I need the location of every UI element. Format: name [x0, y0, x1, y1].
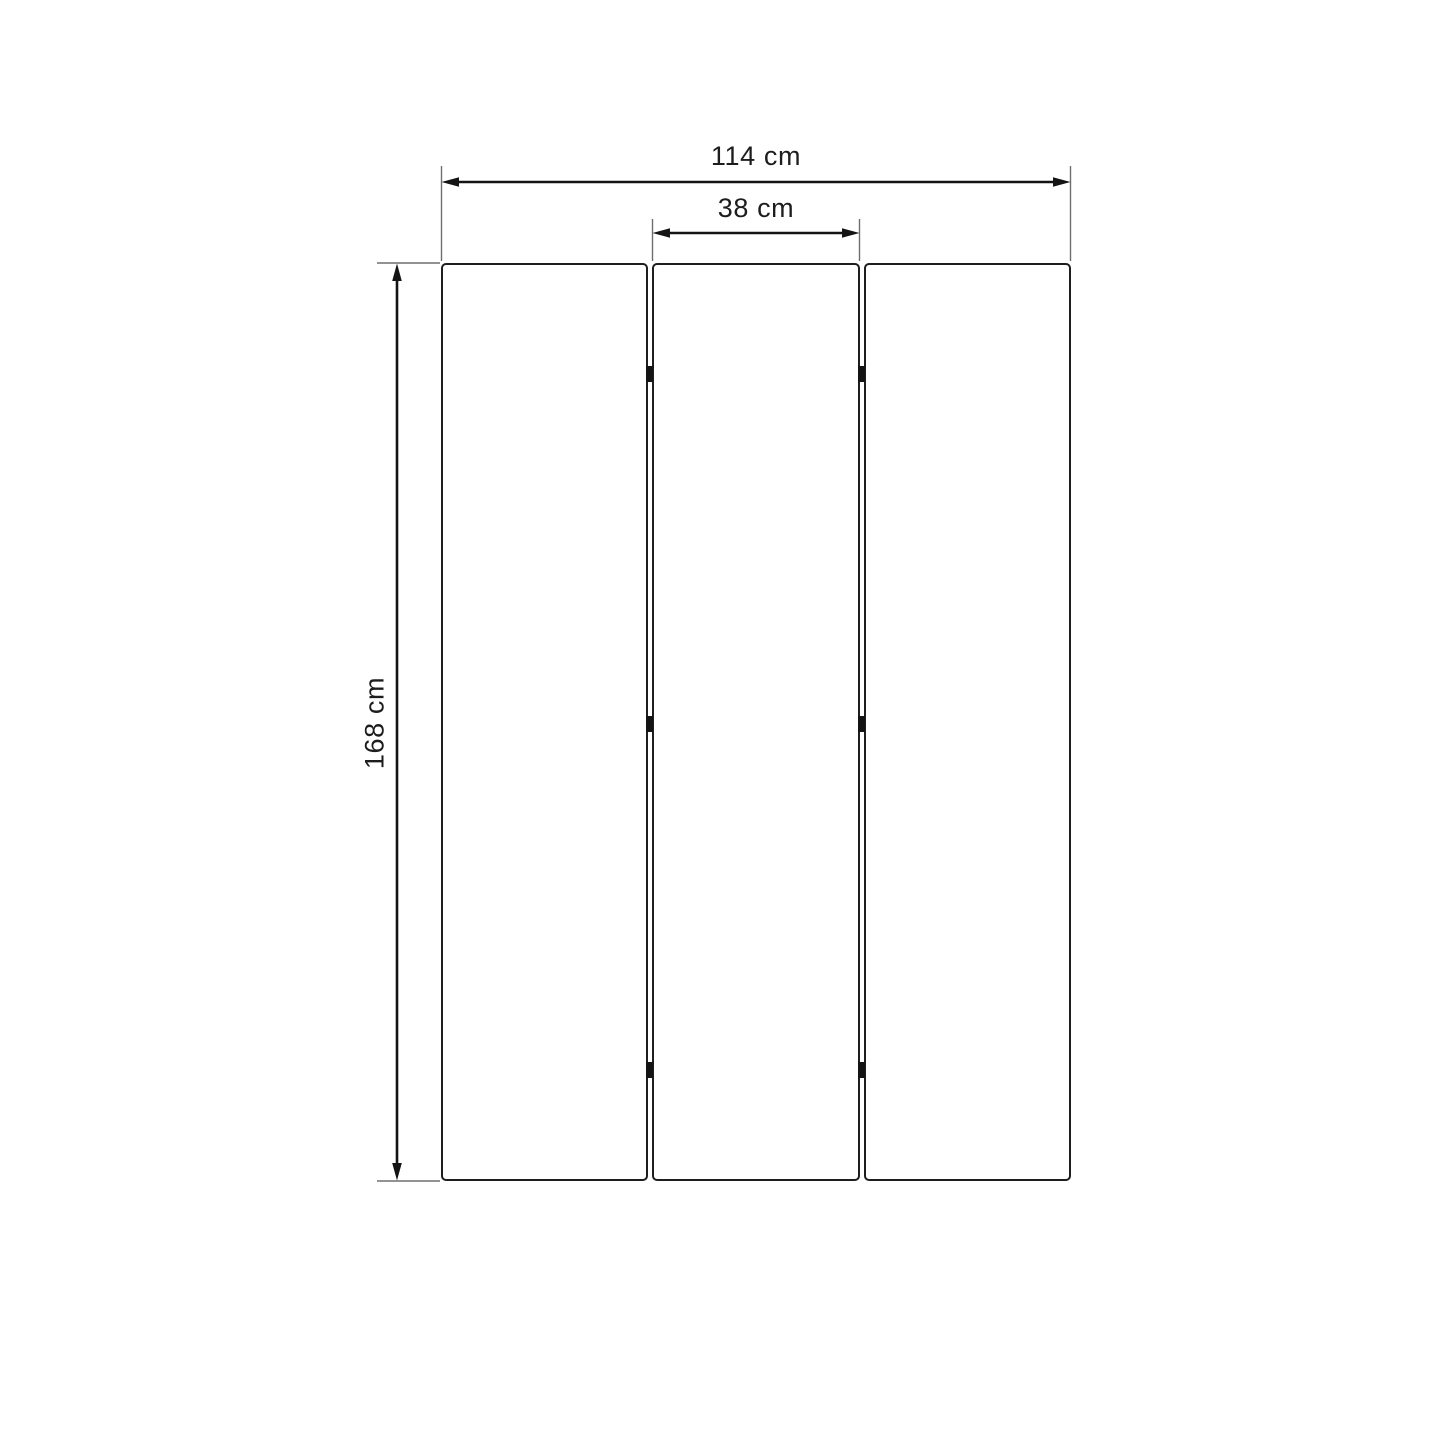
- panel-middle: [652, 263, 860, 1181]
- arrowhead-down-icon: [392, 1163, 402, 1181]
- panel-width-dimension-arrow: [653, 228, 860, 238]
- arrowhead-right-icon: [842, 228, 860, 238]
- arrowhead-up-icon: [392, 264, 402, 282]
- arrowhead-left-icon: [442, 177, 460, 187]
- total-width-label: 114 cm: [656, 143, 856, 170]
- hinge-left-middle: [646, 716, 653, 732]
- hinge-left-top: [646, 366, 653, 382]
- hinge-right-top: [858, 366, 865, 382]
- panel-width-label: 38 cm: [656, 195, 856, 222]
- panel-right: [864, 263, 1071, 1181]
- height-label: 168 cm: [362, 677, 389, 769]
- arrowhead-left-icon: [653, 228, 671, 238]
- hinge-left-bottom: [646, 1062, 653, 1078]
- hinge-right-middle: [858, 716, 865, 732]
- panel-left: [441, 263, 648, 1181]
- dimension-diagram-canvas: 114 cm 38 cm 168 cm: [0, 0, 1445, 1445]
- hinge-right-bottom: [858, 1062, 865, 1078]
- arrowhead-right-icon: [1053, 177, 1071, 187]
- height-dimension-arrow: [392, 264, 402, 1181]
- total-width-dimension-arrow: [442, 177, 1071, 187]
